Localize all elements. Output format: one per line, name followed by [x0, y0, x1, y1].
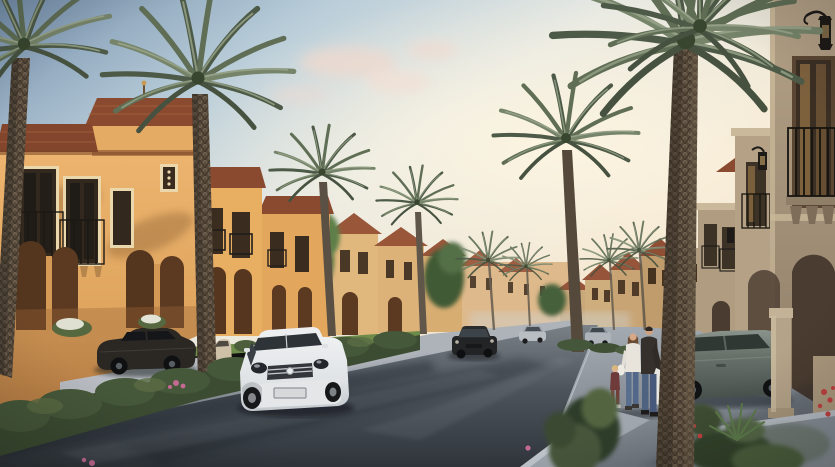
render-canvas: Hazy sky, steel blue upper-left fading t…	[0, 0, 835, 467]
vignette	[0, 0, 835, 467]
street-scene: Hazy sky, steel blue upper-left fading t…	[0, 0, 835, 467]
